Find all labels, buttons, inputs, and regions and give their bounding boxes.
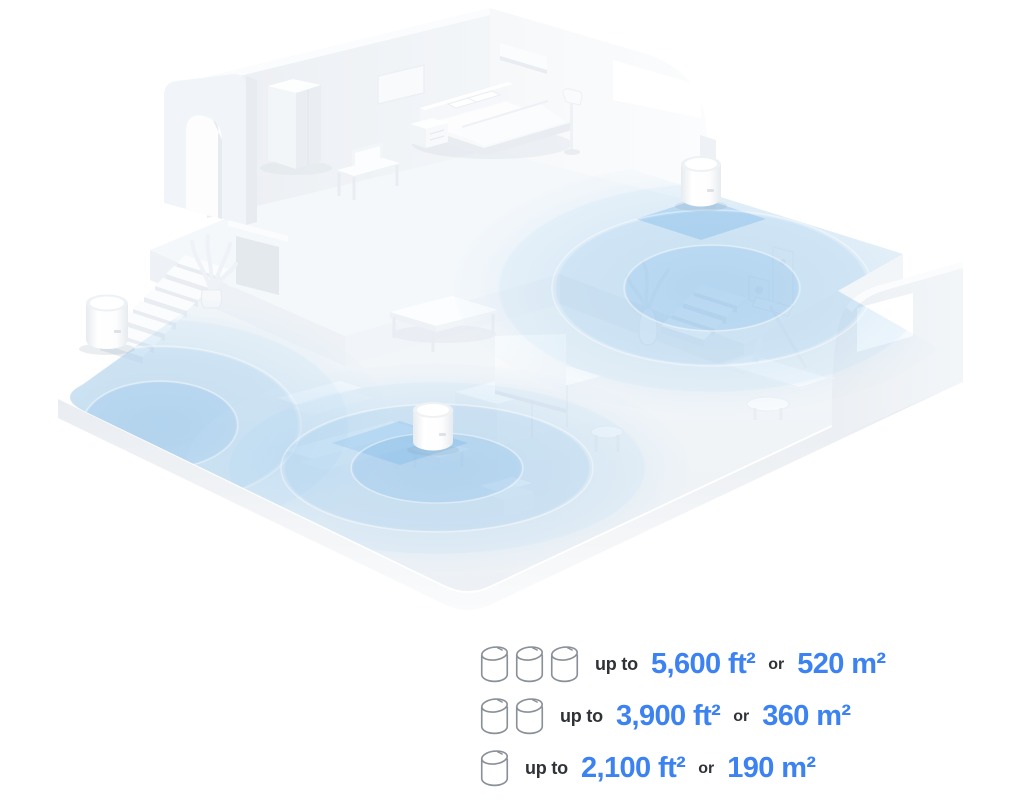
legend-row-3-units: up to 5,600 ft² or 520 m² [479,644,885,685]
isometric-house-scene [0,0,1024,630]
or-label: or [768,656,784,674]
up-to-label: up to [560,706,603,727]
legend-row-2-units: up to 3,900 ft² or 360 m² [479,696,885,737]
arch-doorway [186,115,222,219]
deco-unit-icons [479,644,580,685]
legend-row-1-unit: up to 2,100 ft² or 190 m² [479,748,885,789]
or-label: or [733,708,749,726]
up-to-label: up to [525,758,568,779]
deco-logo [707,189,714,192]
deco-unit-3 [407,402,459,456]
deco-unit-icon [514,696,545,737]
area-sqft-value: 5,600 ft² [651,648,755,681]
entry-arch-wall [164,74,257,225]
deco-unit-2 [675,156,727,212]
wifi-coverage-illustration: up to 5,600 ft² or 520 m² up to 3,900 ft… [0,0,1024,800]
area-sqft-value: 2,100 ft² [581,752,685,785]
deco-logo [439,433,446,436]
deco-unit-icon [549,644,580,685]
area-sqm-value: 190 m² [727,752,815,785]
deco-unit-icon [479,696,510,737]
up-to-label: up to [595,654,638,675]
deco-unit-icon [514,644,545,685]
deco-unit-icon [479,644,510,685]
deco-unit-icons [479,696,545,737]
nightstand [410,118,448,148]
deco-logo [114,330,121,333]
area-sqft-value: 3,900 ft² [616,700,720,733]
area-sqm-value: 360 m² [762,700,850,733]
deco-unit-icon [479,748,510,789]
coverage-legend: up to 5,600 ft² or 520 m² up to 3,900 ft… [479,644,885,789]
area-sqm-value: 520 m² [797,648,885,681]
deco-unit-icons [479,748,510,789]
or-label: or [698,760,714,778]
deco-unit-1 [79,295,135,356]
